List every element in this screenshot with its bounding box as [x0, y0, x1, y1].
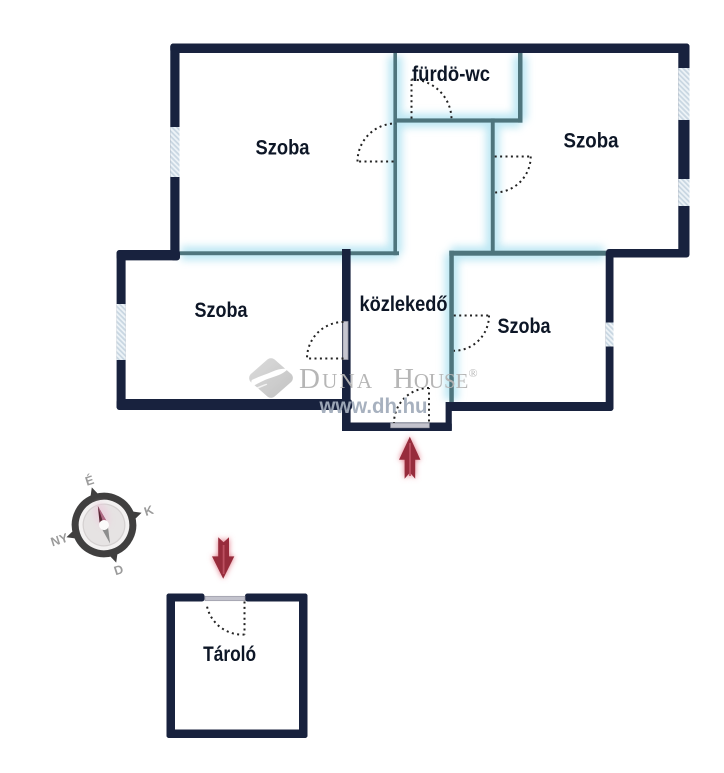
svg-text:Szoba: Szoba [195, 299, 248, 322]
svg-text:Tároló: Tároló [203, 643, 256, 666]
svg-text:fürdö-wc: fürdö-wc [412, 63, 490, 86]
svg-text:www.dh.hu: www.dh.hu [319, 395, 428, 418]
svg-text:Szoba: Szoba [498, 315, 551, 338]
svg-text:Szoba: Szoba [564, 130, 619, 153]
svg-text:Szoba: Szoba [256, 136, 310, 159]
svg-text:®: ® [469, 366, 478, 380]
svg-text:közlekedő: közlekedő [360, 293, 448, 316]
